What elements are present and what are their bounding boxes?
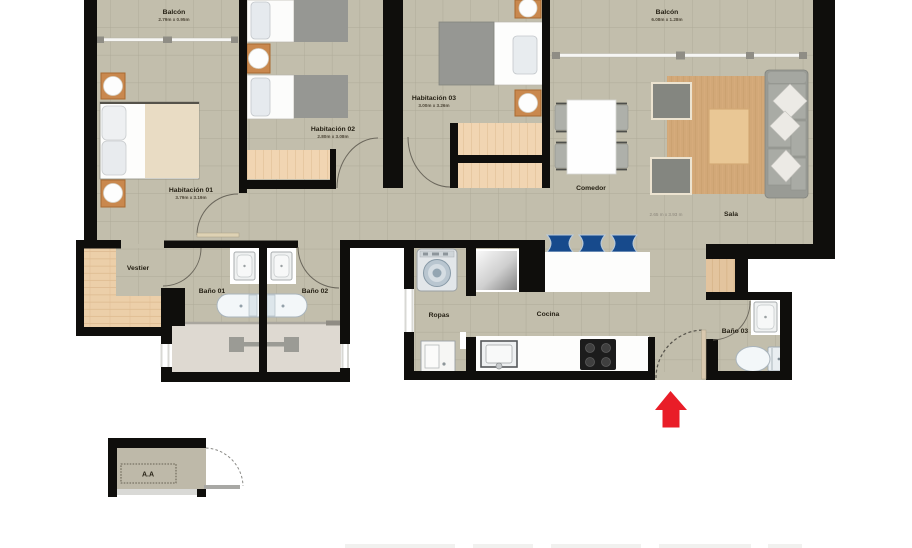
svg-text:2.79m x 0.95m: 2.79m x 0.95m [158,17,189,22]
svg-text:2.65 m x 3.93 m: 2.65 m x 3.93 m [650,212,683,217]
svg-text:Comedor: Comedor [576,185,606,192]
svg-text:A.A: A.A [142,472,154,479]
svg-text:Sala: Sala [724,211,738,218]
svg-text:Habitación 03: Habitación 03 [412,95,456,102]
svg-text:6.08m x 1.28m: 6.08m x 1.28m [651,17,682,22]
svg-text:Baño 03: Baño 03 [722,328,749,335]
svg-text:Baño 02: Baño 02 [302,288,329,295]
svg-text:Balcón: Balcón [163,9,186,16]
svg-text:Vestier: Vestier [127,265,150,272]
svg-text:Baño 01: Baño 01 [199,288,226,295]
svg-text:Habitación 02: Habitación 02 [311,126,355,133]
svg-text:Ropas: Ropas [429,312,450,319]
svg-text:3.79m x 3.19m: 3.79m x 3.19m [175,195,206,200]
svg-text:Habitación 01: Habitación 01 [169,187,213,194]
svg-text:Cocina: Cocina [537,311,560,318]
svg-text:3.00m x 3.26m: 3.00m x 3.26m [418,103,449,108]
svg-text:2.80m x 3.08m: 2.80m x 3.08m [317,134,348,139]
svg-text:Balcón: Balcón [656,9,679,16]
